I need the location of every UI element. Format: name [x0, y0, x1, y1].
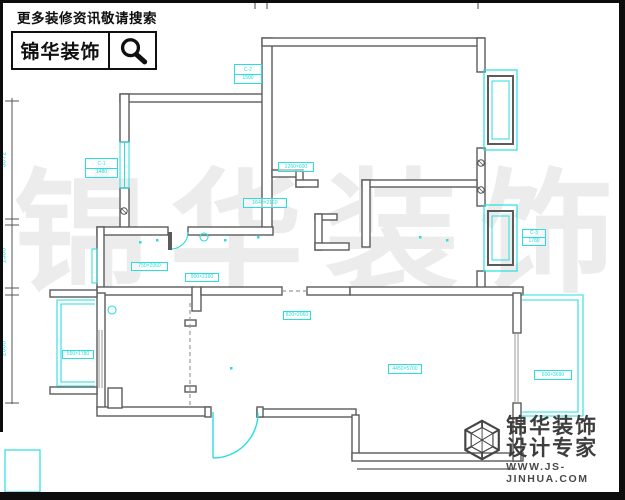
- dim-text: 1500: [235, 75, 261, 82]
- dim-text: 1780: [523, 238, 545, 245]
- bedroom-door: [168, 232, 188, 250]
- footer-text: 锦华装饰 设计专家 WWW.JS-JINHUA.COM: [506, 415, 625, 485]
- dim-text: C-3: [523, 230, 545, 238]
- cube-logo-icon: [462, 415, 502, 465]
- footer-logo-block: 锦华装饰 设计专家 WWW.JS-JINHUA.COM: [462, 415, 625, 485]
- search-icon: [116, 36, 150, 66]
- footer-brand: 锦华装饰: [506, 415, 625, 437]
- dim-text: 750×2060: [132, 263, 167, 270]
- dim-label: C-1 1480: [85, 158, 118, 178]
- dim-label: 4450×5700: [388, 364, 422, 374]
- dim-text: 820×2060: [284, 312, 310, 319]
- dim-label: 820×2060: [283, 311, 311, 320]
- frame-edge-bottom: [0, 492, 625, 500]
- entry-door: [213, 412, 258, 458]
- dim-label: C-2 1500: [234, 64, 262, 84]
- dim-text: 1640×2160: [244, 200, 286, 207]
- dim-text: C-2: [235, 67, 261, 75]
- switch-marks: [139, 236, 449, 370]
- dashed-openings: [190, 291, 307, 405]
- dim-label: 750×2060: [131, 262, 168, 271]
- right-balcony: [522, 295, 583, 416]
- magnifier-cell: [108, 33, 155, 68]
- frame-edge-top: [0, 0, 625, 3]
- dim-label: 2260×600: [278, 162, 314, 172]
- search-hint-text: 更多装修资讯敬请搜索: [17, 7, 157, 27]
- dim-label: 1640×2160: [243, 198, 287, 208]
- brand-name: 锦华装饰: [13, 33, 108, 68]
- left-balcony: [57, 300, 95, 386]
- dim-text: 4450×5700: [389, 366, 421, 373]
- dim-text: C-1: [86, 161, 117, 169]
- footer-tagline: 设计专家: [506, 437, 625, 459]
- dim-text: 600×3690: [535, 372, 571, 379]
- footer-url: WWW.JS-JINHUA.COM: [506, 461, 625, 485]
- frame-edge-right: [619, 0, 625, 500]
- bay-window-lower: [484, 205, 517, 271]
- walls: [50, 38, 523, 461]
- dim-label: C-3 1780: [522, 229, 546, 246]
- dim-label: 600×3690: [534, 370, 572, 380]
- dim-label: 900×2160: [185, 273, 219, 282]
- dim-text: 1480: [86, 169, 117, 176]
- bay-window-upper: [484, 70, 517, 150]
- flyer-floor-plan: 锦 华 装 饰: [0, 0, 625, 500]
- frame-edge-left: [0, 0, 3, 432]
- gray-windows: [99, 330, 518, 403]
- dim-text: 900×2160: [186, 274, 218, 281]
- dim-label: 550×1780: [62, 350, 94, 359]
- legend-box: [5, 450, 40, 492]
- dim-text: 2260×600: [279, 164, 313, 171]
- dim-text: 550×1780: [63, 351, 93, 358]
- brand-search-box: 锦华装饰: [11, 31, 157, 70]
- header-banner: 更多装修资讯敬请搜索 锦华装饰: [11, 7, 157, 70]
